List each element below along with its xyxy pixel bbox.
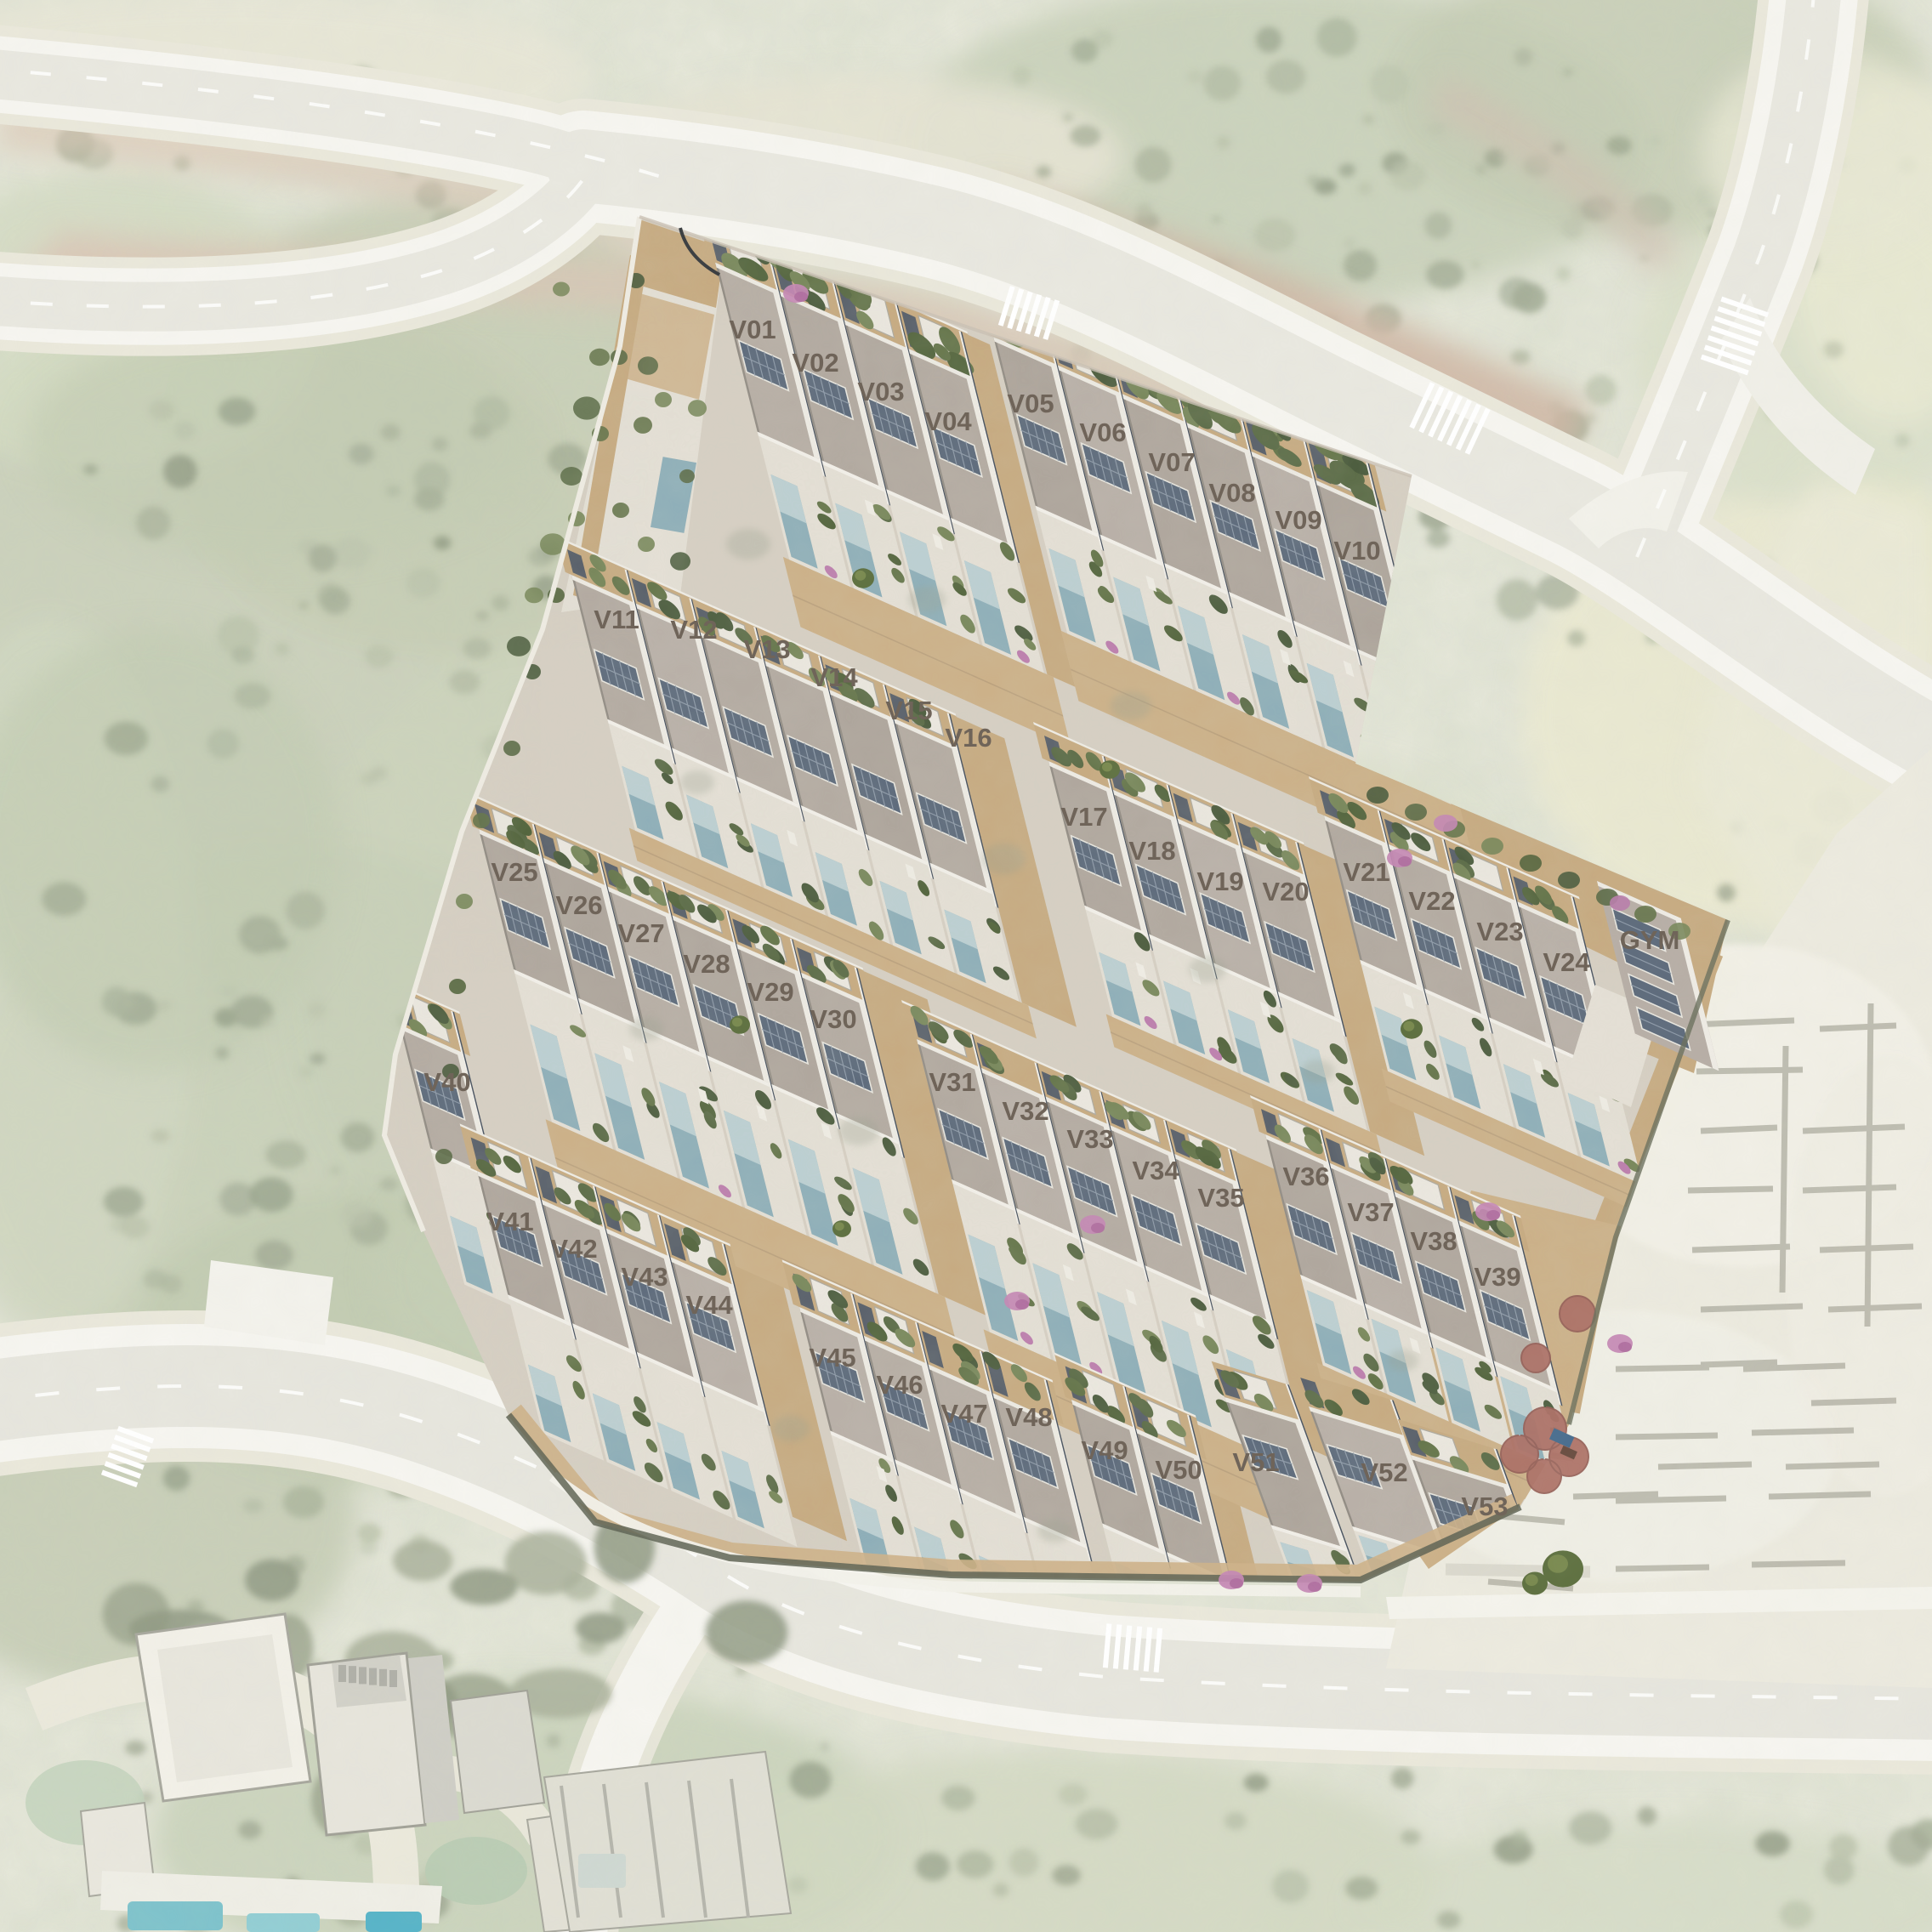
svg-text:V46: V46 bbox=[876, 1370, 923, 1400]
svg-text:V40: V40 bbox=[423, 1067, 470, 1097]
svg-text:V22: V22 bbox=[1408, 886, 1455, 916]
svg-text:V43: V43 bbox=[621, 1262, 668, 1292]
svg-text:V38: V38 bbox=[1410, 1226, 1457, 1256]
svg-text:V03: V03 bbox=[857, 377, 904, 406]
svg-text:V06: V06 bbox=[1079, 418, 1126, 447]
svg-text:V52: V52 bbox=[1361, 1458, 1407, 1487]
svg-text:V01: V01 bbox=[729, 315, 776, 344]
svg-text:V24: V24 bbox=[1543, 947, 1590, 977]
svg-text:V23: V23 bbox=[1476, 917, 1523, 946]
svg-text:V18: V18 bbox=[1128, 836, 1175, 866]
svg-text:V04: V04 bbox=[924, 406, 972, 436]
svg-text:V49: V49 bbox=[1081, 1435, 1128, 1465]
svg-text:V35: V35 bbox=[1197, 1183, 1244, 1213]
svg-text:V53: V53 bbox=[1461, 1492, 1508, 1521]
svg-text:V50: V50 bbox=[1155, 1455, 1202, 1485]
svg-text:V16: V16 bbox=[945, 723, 992, 753]
svg-text:V30: V30 bbox=[810, 1004, 856, 1034]
svg-text:V33: V33 bbox=[1066, 1124, 1113, 1154]
svg-text:V10: V10 bbox=[1333, 536, 1380, 565]
svg-text:V28: V28 bbox=[683, 949, 730, 979]
svg-text:V44: V44 bbox=[685, 1290, 733, 1320]
svg-text:V37: V37 bbox=[1347, 1197, 1394, 1227]
svg-text:V09: V09 bbox=[1275, 505, 1321, 535]
svg-text:V08: V08 bbox=[1208, 478, 1255, 508]
svg-text:V26: V26 bbox=[555, 890, 602, 920]
svg-text:GYM: GYM bbox=[1620, 925, 1680, 955]
svg-text:V51: V51 bbox=[1232, 1447, 1279, 1477]
svg-text:V39: V39 bbox=[1474, 1262, 1520, 1292]
svg-text:V17: V17 bbox=[1060, 802, 1107, 832]
svg-text:V02: V02 bbox=[792, 348, 838, 378]
svg-text:V31: V31 bbox=[929, 1067, 975, 1097]
svg-text:V21: V21 bbox=[1343, 857, 1389, 887]
svg-text:V13: V13 bbox=[743, 634, 790, 664]
svg-text:V25: V25 bbox=[491, 857, 537, 887]
svg-text:V07: V07 bbox=[1148, 447, 1195, 477]
svg-text:V27: V27 bbox=[617, 918, 664, 948]
svg-text:V29: V29 bbox=[747, 977, 793, 1007]
svg-text:V12: V12 bbox=[670, 615, 717, 645]
svg-text:V11: V11 bbox=[594, 605, 639, 634]
svg-text:V48: V48 bbox=[1005, 1402, 1052, 1432]
svg-text:V14: V14 bbox=[810, 662, 858, 692]
svg-text:V19: V19 bbox=[1196, 867, 1243, 896]
svg-text:V34: V34 bbox=[1132, 1156, 1179, 1185]
svg-text:V45: V45 bbox=[809, 1343, 855, 1372]
svg-text:V32: V32 bbox=[1002, 1096, 1048, 1126]
svg-text:V15: V15 bbox=[885, 696, 932, 725]
svg-text:V42: V42 bbox=[550, 1234, 597, 1264]
svg-text:V36: V36 bbox=[1282, 1162, 1329, 1191]
svg-text:V41: V41 bbox=[486, 1207, 533, 1236]
svg-text:V47: V47 bbox=[940, 1399, 987, 1429]
svg-text:V05: V05 bbox=[1007, 389, 1054, 418]
svg-text:V20: V20 bbox=[1262, 877, 1309, 906]
